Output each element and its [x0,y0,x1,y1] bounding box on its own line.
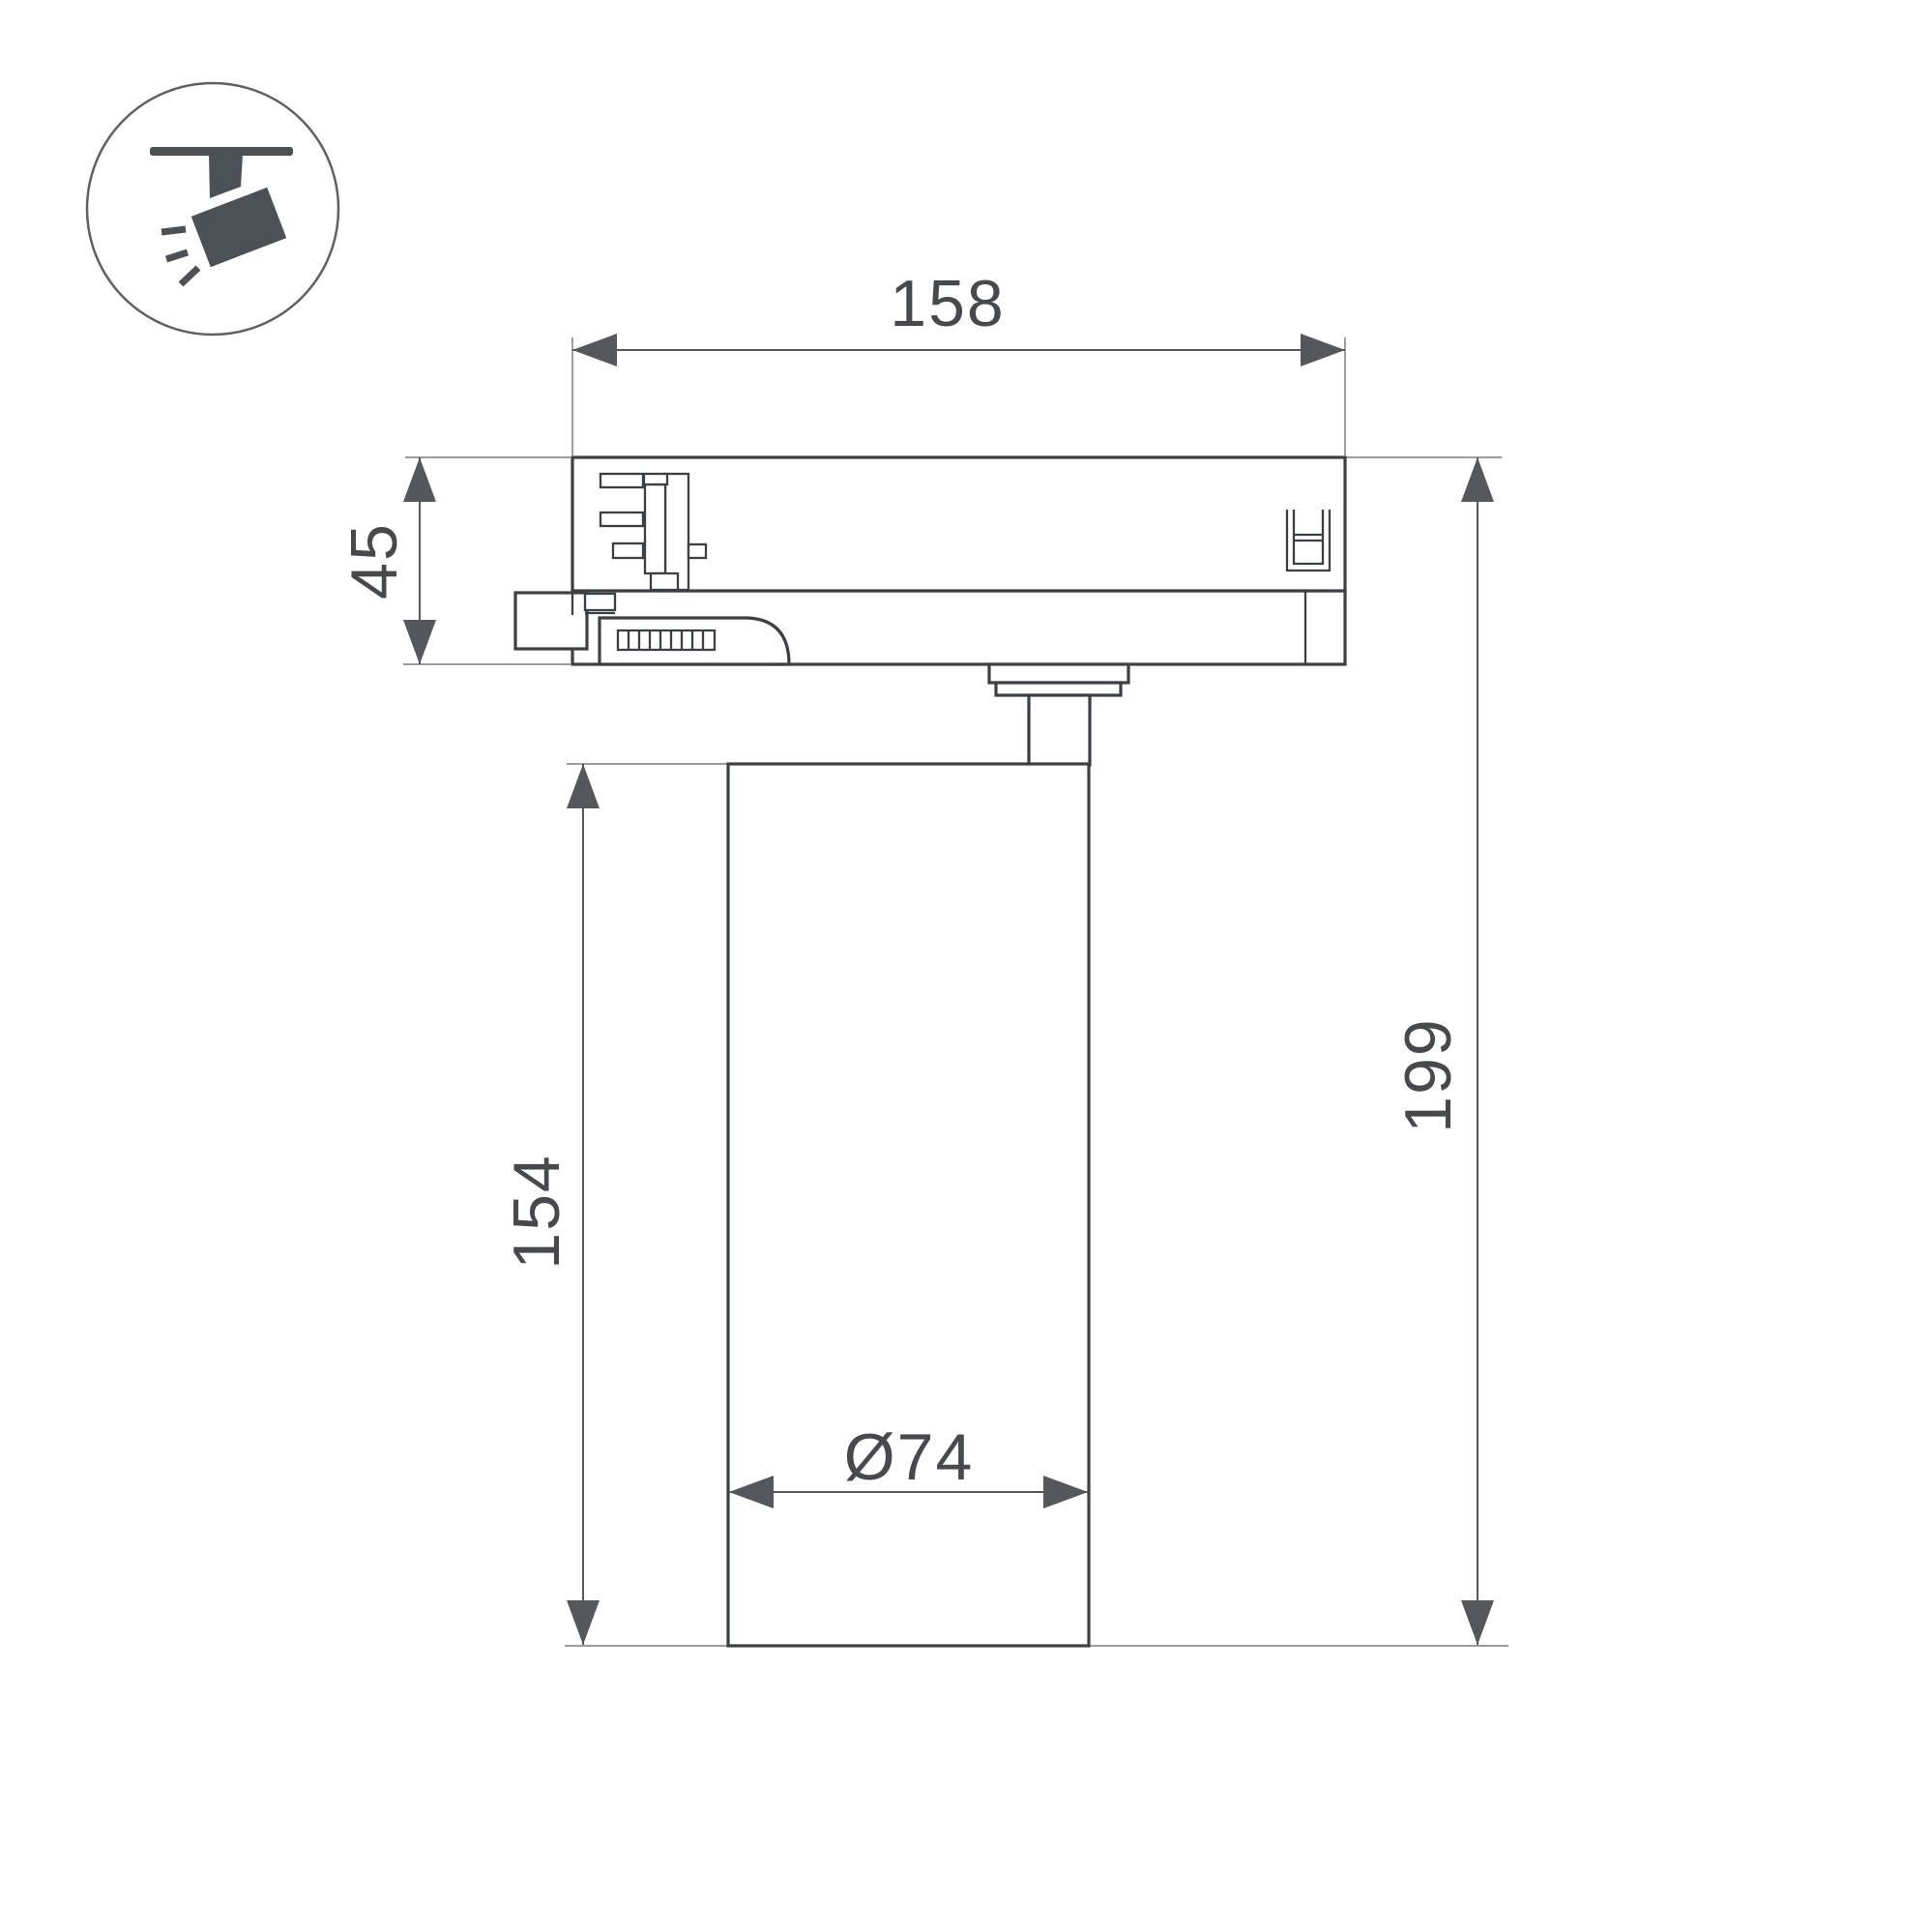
icon-ray [161,229,186,232]
icon-ray [166,252,188,259]
adapter-ribbed-slider [618,630,715,650]
latch-tab [585,594,615,610]
arrowhead-down [403,620,436,664]
arrowhead-left [572,334,617,366]
icon-lamp-head [191,188,286,267]
arrowhead-down [567,1600,600,1645]
arrowhead-up [1461,457,1494,502]
pin-inner-bar [645,484,665,573]
adapter-latch-box [515,593,587,649]
dim-track-width-label: 158 [890,267,1005,340]
pivot-flange-lower [996,683,1121,695]
arrowhead-up [567,764,600,808]
lamp-body [728,764,1089,1646]
icon-light-rays [161,229,198,284]
pin-notch [688,544,706,558]
pin-prong [600,474,643,487]
arrowhead-up [403,457,436,502]
pin-prong [613,543,643,558]
pin-prong [600,512,643,526]
dim-diameter-label: Ø74 [844,1420,975,1494]
technical-drawing-svg: 158 45 154 199 Ø74 [0,0,1932,1932]
dimension-drawing-page: 158 45 154 199 Ø74 [0,0,1932,1932]
pivot-flange-upper [989,664,1128,683]
pin-foot [651,573,678,590]
icon-ray [181,268,198,284]
arrowhead-right [1301,334,1345,366]
dim-adapter-height-label: 45 [337,522,411,600]
track-spotlight-icon [87,83,338,335]
dim-total-height-label: 199 [1391,1017,1465,1132]
dim-body-height-label: 154 [500,1154,573,1269]
arrowhead-down [1461,1600,1494,1645]
pin-cap [644,474,667,484]
pivot-stem [1029,695,1090,765]
icon-mount-stem [209,154,243,198]
